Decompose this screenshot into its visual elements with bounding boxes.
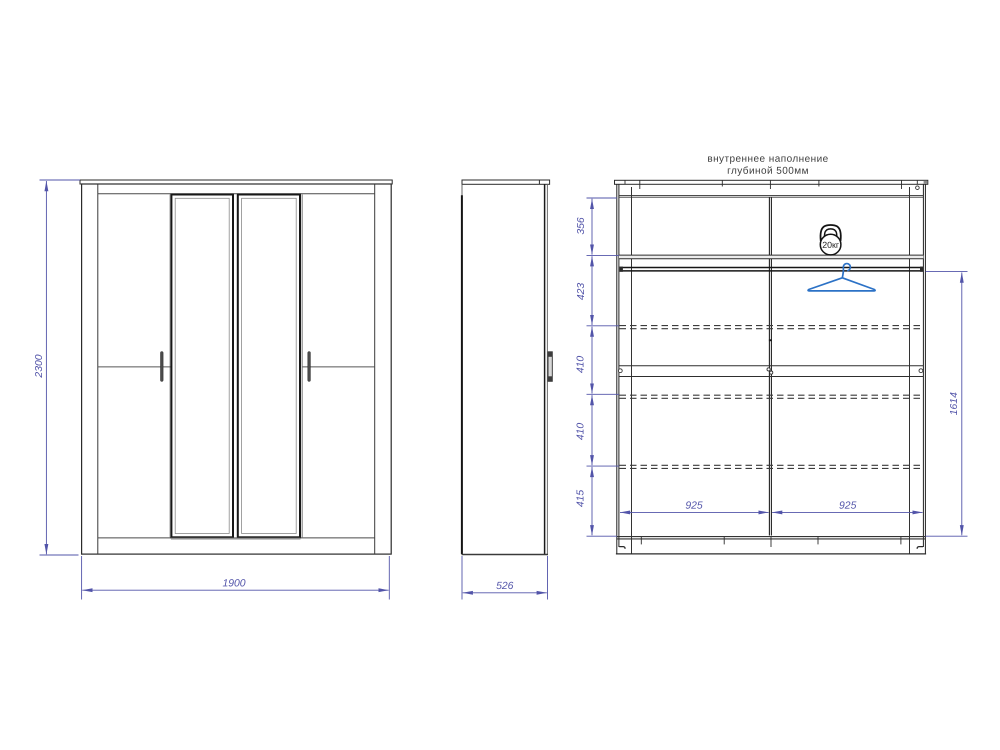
svg-text:1900: 1900 bbox=[222, 578, 245, 589]
svg-text:526: 526 bbox=[496, 581, 514, 592]
svg-text:925: 925 bbox=[685, 501, 703, 512]
svg-text:356: 356 bbox=[576, 217, 587, 235]
svg-text:410: 410 bbox=[576, 423, 587, 441]
svg-text:2300: 2300 bbox=[34, 354, 45, 378]
svg-text:415: 415 bbox=[576, 490, 587, 508]
svg-text:410: 410 bbox=[576, 356, 587, 374]
svg-text:1614: 1614 bbox=[949, 392, 960, 415]
svg-text:423: 423 bbox=[576, 283, 587, 301]
svg-text:20кг: 20кг bbox=[822, 240, 839, 250]
svg-text:925: 925 bbox=[839, 501, 857, 512]
svg-text:глубиной 500мм: глубиной 500мм bbox=[727, 165, 809, 177]
svg-text:внутреннее наполнение: внутреннее наполнение bbox=[707, 154, 828, 165]
